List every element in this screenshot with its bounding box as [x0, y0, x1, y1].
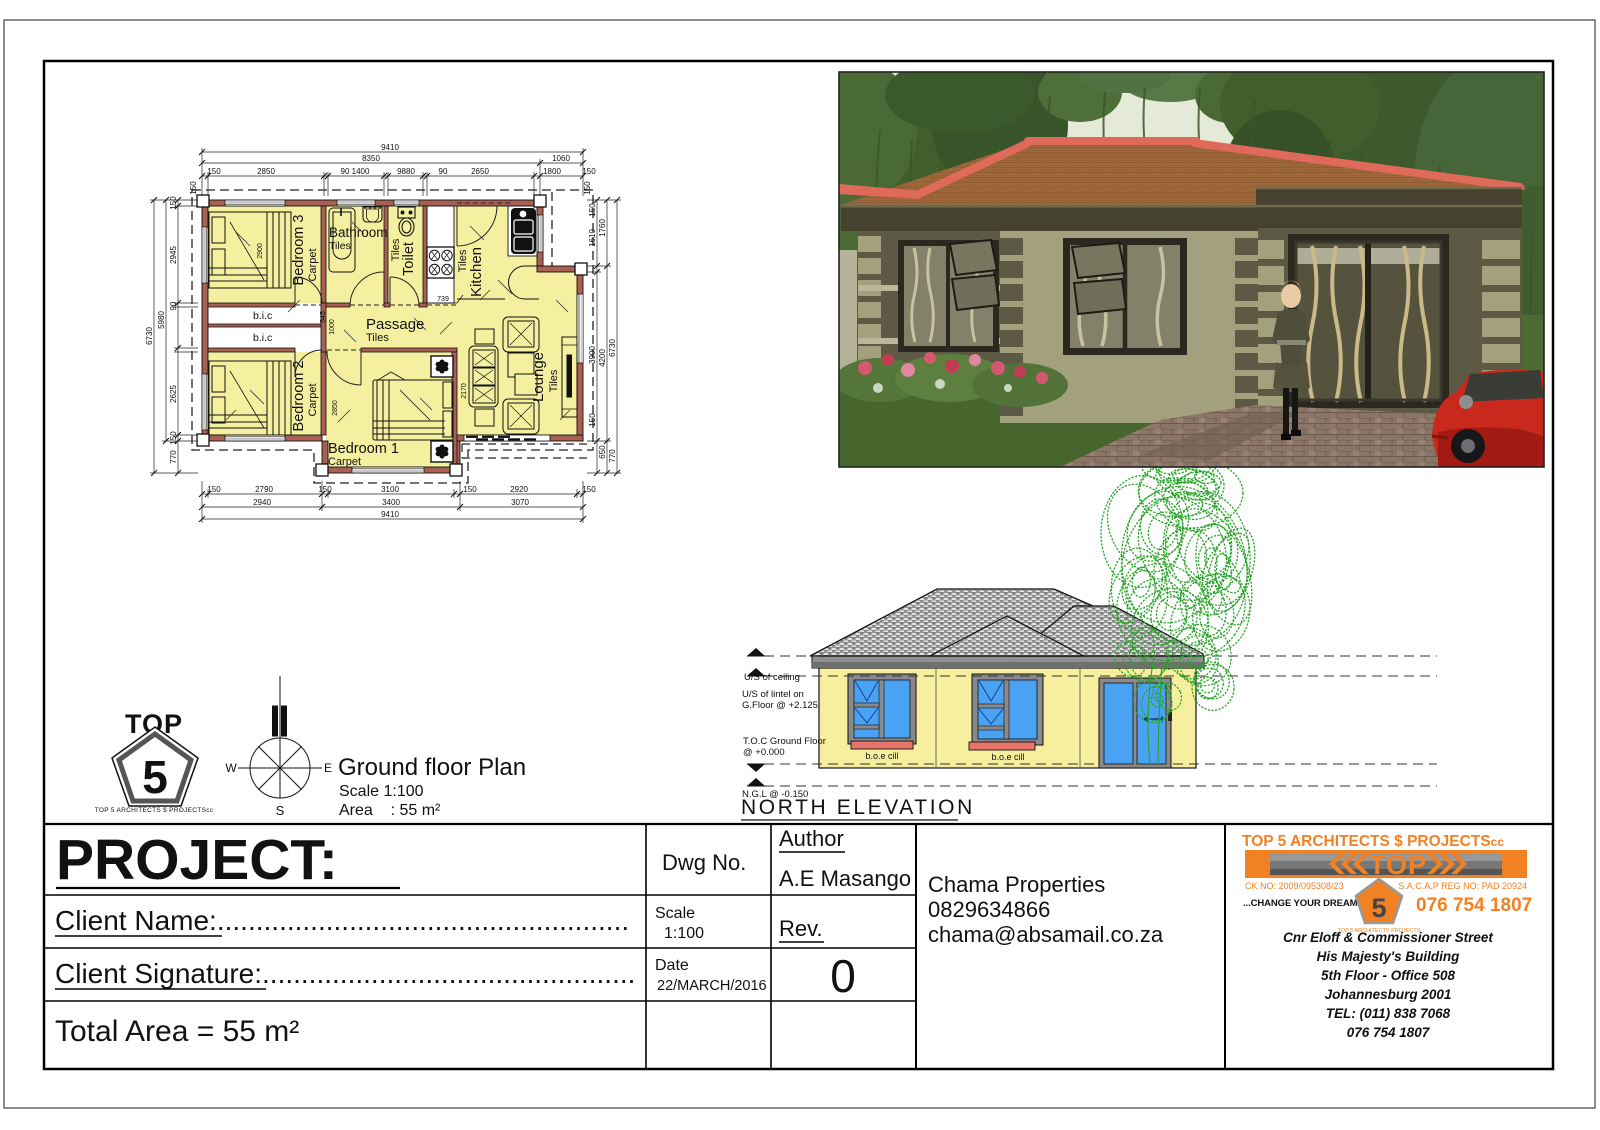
svg-text:Carpet: Carpet [328, 456, 361, 468]
svg-text:8350: 8350 [362, 154, 380, 163]
svg-text:Carpet: Carpet [307, 248, 319, 281]
svg-text:2920: 2920 [510, 485, 528, 494]
svg-text:Scale: Scale [655, 905, 695, 922]
svg-text:Dwg No.: Dwg No. [662, 850, 746, 875]
svg-text:Carpet: Carpet [307, 383, 319, 416]
svg-text:2850: 2850 [257, 167, 275, 176]
svg-text:2850: 2850 [332, 400, 339, 416]
svg-text:5980: 5980 [157, 311, 166, 329]
svg-text:0829634866: 0829634866 [928, 897, 1050, 922]
svg-text:Bedroom 2: Bedroom 2 [291, 361, 307, 432]
svg-text:150: 150 [588, 413, 597, 427]
svg-text:150: 150 [582, 167, 596, 176]
svg-text:Lounge: Lounge [530, 352, 547, 402]
svg-text:5: 5 [1371, 893, 1386, 923]
svg-text:3900: 3900 [588, 346, 597, 364]
svg-text:Tiles: Tiles [548, 369, 560, 392]
svg-text:3100: 3100 [381, 485, 399, 494]
svg-text:Tiles: Tiles [457, 249, 469, 272]
svg-text:770: 770 [169, 450, 178, 464]
svg-text:2790: 2790 [255, 485, 273, 494]
svg-text:9410: 9410 [381, 510, 399, 519]
svg-text:90 1400: 90 1400 [341, 167, 370, 176]
svg-text:Johannesburg 2001: Johannesburg 2001 [1325, 987, 1452, 1002]
svg-text:chama@absamail.co.za: chama@absamail.co.za [928, 922, 1164, 947]
svg-text:150: 150 [583, 181, 592, 195]
svg-text:1760: 1760 [598, 219, 607, 237]
svg-text:Bedroom 3: Bedroom 3 [291, 215, 307, 286]
svg-text:Passage: Passage [366, 316, 424, 333]
svg-text:Tiles: Tiles [329, 240, 351, 252]
svg-text:TOP: TOP [1369, 850, 1427, 880]
svg-text:150: 150 [318, 485, 332, 494]
svg-text:1060: 1060 [552, 154, 570, 163]
svg-text:1800: 1800 [543, 167, 561, 176]
svg-text:Total Area = 55 m²: Total Area = 55 m² [55, 1015, 299, 1048]
svg-text:770: 770 [608, 449, 617, 463]
svg-text:Date: Date [655, 957, 689, 974]
svg-text:b.o.e cill: b.o.e cill [991, 752, 1024, 762]
svg-text:545: 545 [320, 311, 327, 323]
svg-text:TEL: (011) 838 7068: TEL: (011) 838 7068 [1326, 1006, 1451, 1021]
svg-text:Tiles: Tiles [366, 332, 389, 344]
svg-text:150: 150 [189, 181, 198, 195]
svg-text:2945: 2945 [169, 246, 178, 264]
svg-text:Chama Properties: Chama Properties [928, 872, 1105, 897]
svg-text:90: 90 [439, 167, 448, 176]
svg-text:6730: 6730 [145, 327, 154, 345]
svg-text:9410: 9410 [381, 143, 399, 152]
svg-text:Toilet: Toilet [401, 242, 417, 276]
svg-text:90: 90 [169, 301, 178, 310]
svg-text:Ground floor Plan: Ground floor Plan [338, 754, 526, 781]
svg-text:9880: 9880 [397, 167, 415, 176]
svg-text:NORTH ELEVATION: NORTH ELEVATION [741, 796, 975, 819]
svg-text:150: 150 [588, 203, 597, 217]
svg-text:TOP 5 ARCHITECTS $ PROJECTScc: TOP 5 ARCHITECTS $ PROJECTScc [1242, 833, 1504, 850]
svg-text:150: 150 [169, 431, 178, 445]
svg-text:0: 0 [830, 950, 856, 1002]
svg-text:2650: 2650 [471, 167, 489, 176]
svg-text:Bathroom: Bathroom [329, 225, 388, 240]
svg-text:CK NO: 2009/095308/23: CK NO: 2009/095308/23 [1245, 881, 1344, 891]
svg-text:2940: 2940 [253, 498, 271, 507]
svg-text:Tiles: Tiles [390, 238, 402, 261]
svg-text:E: E [324, 761, 332, 775]
svg-text:Area : 55 m²: Area : 55 m² [339, 802, 441, 819]
svg-text:U/S of lintel on: U/S of lintel on [742, 689, 804, 700]
svg-text:TOP 5 ARCHITECTS $ PROJECTScc: TOP 5 ARCHITECTS $ PROJECTScc [95, 807, 214, 814]
svg-text:150: 150 [207, 485, 221, 494]
svg-text:G.Floor @ +2.125: G.Floor @ +2.125 [742, 700, 818, 711]
svg-text:Client Signature:.............: Client Signature:.......................… [55, 958, 635, 989]
svg-text:150: 150 [463, 485, 477, 494]
svg-text:076 754 1807: 076 754 1807 [1347, 1025, 1431, 1040]
svg-text:1:100: 1:100 [664, 925, 704, 942]
svg-text:Client Name:..................: Client Name:............................… [55, 905, 629, 936]
svg-text:22/MARCH/2016: 22/MARCH/2016 [657, 978, 767, 994]
svg-text:b.o.e cill: b.o.e cill [865, 751, 898, 761]
svg-text:T.O.C Ground Floor: T.O.C Ground Floor [743, 736, 826, 747]
svg-text:S: S [276, 803, 285, 818]
svg-text:1000: 1000 [329, 319, 336, 335]
svg-text:3070: 3070 [511, 498, 529, 507]
svg-text:1610: 1610 [588, 229, 597, 247]
svg-text:650: 650 [598, 445, 607, 459]
svg-text:150: 150 [207, 167, 221, 176]
svg-text:2625: 2625 [169, 385, 178, 403]
svg-text:PROJECT:: PROJECT: [56, 828, 338, 892]
svg-text:A.E Masango: A.E Masango [779, 866, 911, 891]
svg-text:Author: Author [779, 826, 844, 851]
svg-text:Bedroom 1: Bedroom 1 [328, 441, 399, 457]
svg-text:3400: 3400 [382, 498, 400, 507]
svg-text:150: 150 [582, 485, 596, 494]
svg-text:@ +0.000: @ +0.000 [743, 747, 785, 758]
svg-text:5: 5 [142, 751, 168, 803]
svg-text:6730: 6730 [608, 339, 617, 357]
svg-text:2900: 2900 [257, 243, 264, 259]
svg-text:4200: 4200 [598, 349, 607, 367]
svg-text:Cnr Eloff & Commissioner Stree: Cnr Eloff & Commissioner Street [1283, 930, 1493, 945]
svg-text:W: W [225, 761, 237, 775]
svg-text:150: 150 [169, 196, 178, 210]
svg-text:Rev.: Rev. [779, 916, 823, 941]
svg-text:739: 739 [437, 296, 449, 303]
svg-text:...CHANGE YOUR DREAM...: ...CHANGE YOUR DREAM... [1243, 898, 1365, 909]
svg-text:His Majesty's Building: His Majesty's Building [1317, 949, 1460, 964]
svg-text:S.A.C.A.P REG NO: PAD 20924: S.A.C.A.P REG NO: PAD 20924 [1398, 881, 1527, 891]
svg-text:b.i.c: b.i.c [253, 310, 272, 322]
svg-text:2170: 2170 [461, 383, 468, 399]
svg-text:Kitchen: Kitchen [468, 247, 485, 297]
svg-text:076 754 1807: 076 754 1807 [1416, 895, 1532, 916]
svg-text:5th Floor - Office 508: 5th Floor - Office 508 [1321, 968, 1456, 983]
svg-text:b.i.c: b.i.c [253, 332, 272, 344]
svg-text:Scale 1:100: Scale 1:100 [339, 783, 424, 800]
